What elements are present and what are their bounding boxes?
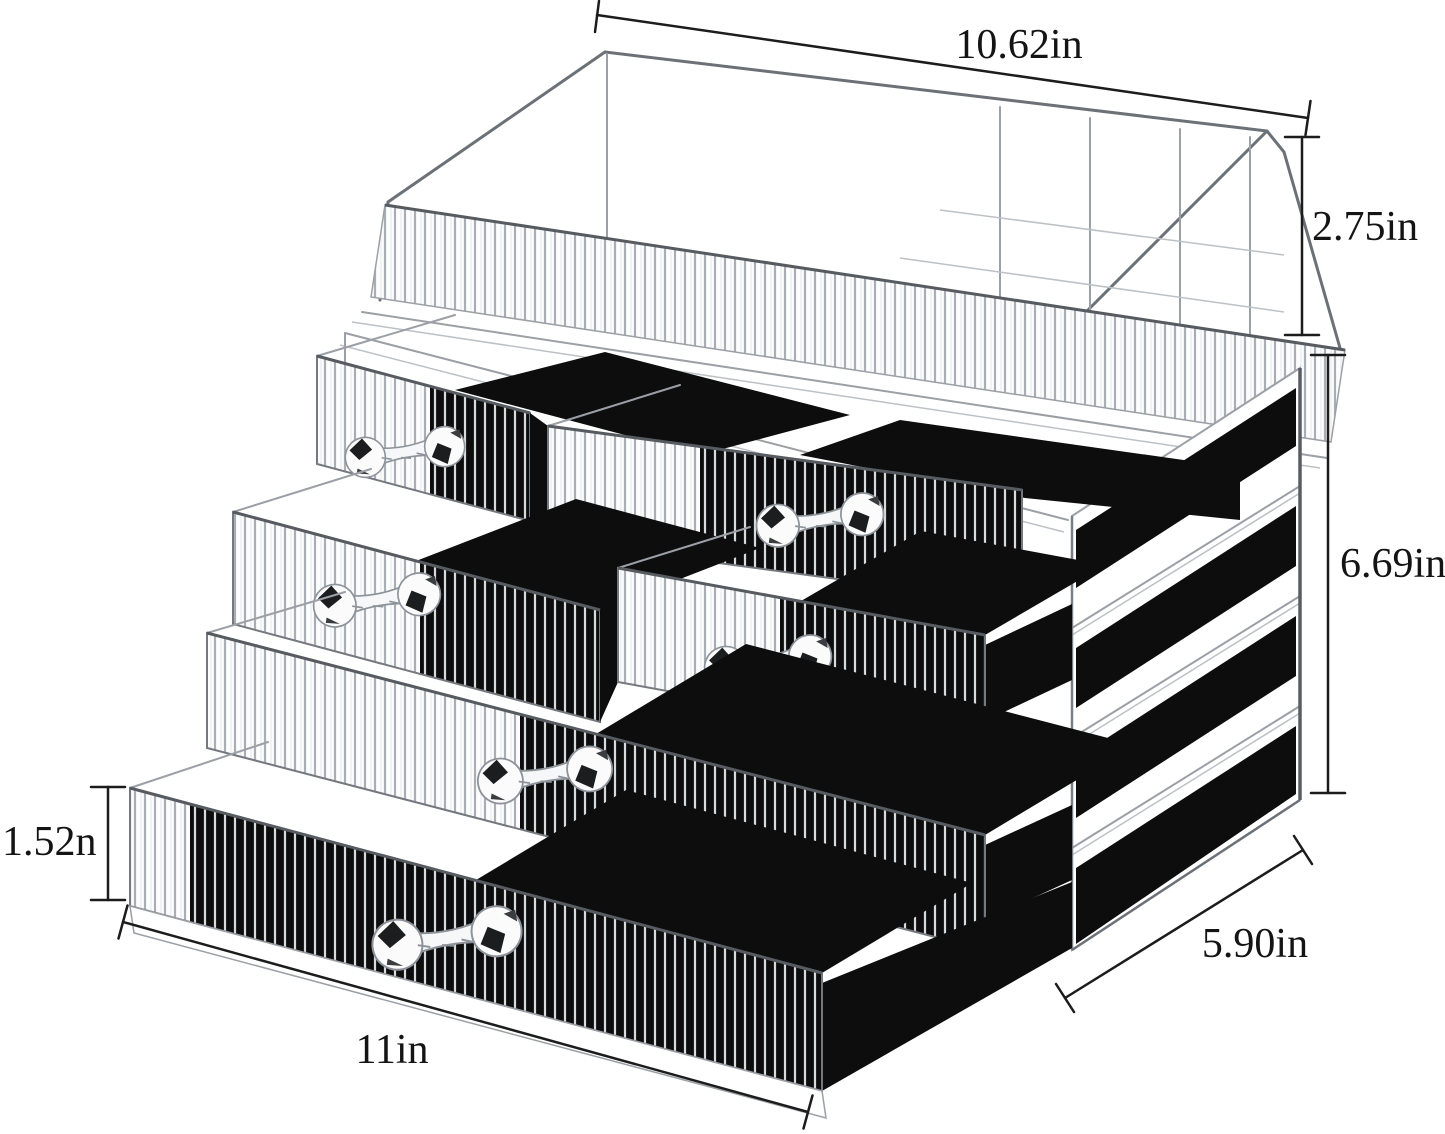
product-dimension-image: 10.62in 2.75in 6.69in 1.52n 11in 5.90in bbox=[0, 0, 1445, 1134]
label-bottom-width: 11in bbox=[355, 1027, 428, 1073]
label-depth: 5.90in bbox=[1202, 921, 1308, 967]
label-drawer-height: 1.52n bbox=[2, 819, 97, 865]
label-unit-height: 6.69in bbox=[1340, 541, 1445, 587]
label-top-width: 10.62in bbox=[955, 22, 1082, 68]
organizer-diagram-svg: 10.62in 2.75in 6.69in 1.52n 11in 5.90in bbox=[0, 0, 1445, 1134]
label-tray-height: 2.75in bbox=[1312, 204, 1418, 250]
